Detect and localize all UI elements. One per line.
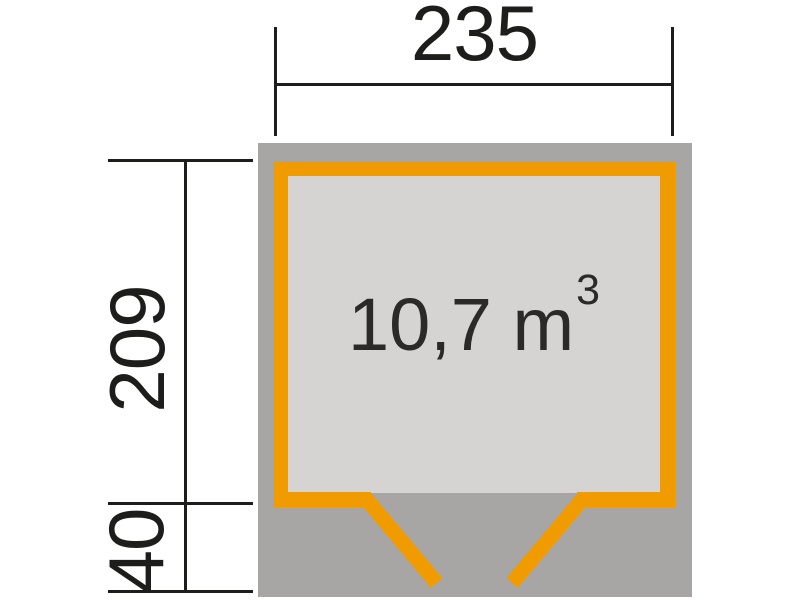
volume-exponent: 3 (576, 266, 600, 314)
width-dimension-line (276, 83, 673, 86)
wall-top (273, 161, 675, 176)
height-tick-middle (108, 502, 253, 505)
wall-bottom-left (273, 492, 371, 507)
height-dimension-label: 209 (98, 285, 176, 412)
width-extension-line-left (274, 27, 277, 136)
volume-value: 10,7 m (348, 283, 574, 366)
height-tick-top (108, 159, 253, 162)
wall-left (273, 161, 288, 507)
front-depth-dimension-label: 40 (97, 509, 175, 594)
floor-plan-diagram: 235 209 40 10,7 m3 (0, 0, 800, 600)
volume-label: 10,7 m3 (288, 288, 660, 362)
height-dimension-line (184, 159, 187, 593)
wall-right (660, 161, 675, 507)
width-extension-line-right (671, 27, 674, 136)
wall-bottom-right (577, 492, 675, 507)
width-dimension-label: 235 (276, 0, 673, 72)
